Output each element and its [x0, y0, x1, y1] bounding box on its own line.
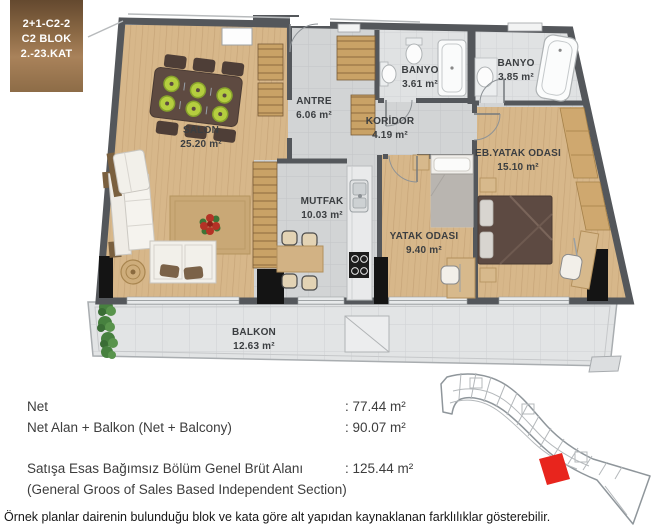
site-plan-outline: [441, 374, 650, 524]
summary-value: : 125.44 m²: [345, 461, 413, 476]
nightstand: [413, 155, 429, 170]
nightstand: [480, 268, 496, 282]
summary-row-gross-en: (General Groos of Sales Based Independen…: [0, 482, 460, 500]
kitchen-cabinet-divider: [253, 162, 277, 268]
desk-chair: [441, 266, 459, 284]
unit-type-badge: 2+1-C2-2 C2 BLOK 2.-23.KAT: [10, 0, 83, 92]
shower-icon: [438, 40, 466, 96]
site-plan: [441, 356, 650, 524]
desk-chair: [559, 253, 583, 280]
balcony-floor: [88, 302, 617, 366]
summary-label: (General Groos of Sales Based Independen…: [27, 482, 347, 497]
badge-line-block: C2 BLOK: [10, 32, 83, 47]
kitchen-counter: [347, 166, 372, 300]
summary-row-gross: Satışa Esas Bağımsız Bölüm Genel Brüt Al…: [0, 461, 460, 479]
floor-plan-page: 2+1-C2-2 C2 BLOK 2.-23.KAT SALON 25.20 m…: [0, 0, 660, 529]
armchair: [106, 147, 150, 197]
stove-icon: [349, 252, 369, 278]
disclaimer-text: Örnek planlar dairenin bulunduğu blok ve…: [4, 510, 658, 524]
sink-icon: [350, 180, 368, 212]
toilet-icon: [406, 38, 422, 64]
summary-label: Net: [27, 399, 48, 414]
summary-row-net: Net : 77.44 m²: [0, 399, 460, 417]
coffee-table: [121, 260, 145, 284]
summary-value: : 90.07 m²: [345, 420, 406, 435]
badge-line-type: 2+1-C2-2: [10, 17, 83, 32]
tv-unit: [99, 256, 113, 298]
washbasin-icon: [475, 58, 497, 96]
badge-line-floor: 2.-23.KAT: [10, 47, 83, 62]
summary-label: Net Alan + Balkon (Net + Balcony): [27, 420, 232, 435]
summary-label: Satışa Esas Bağımsız Bölüm Genel Brüt Al…: [27, 461, 303, 476]
sofa-chaise: [150, 241, 216, 283]
summary-value: : 77.44 m²: [345, 399, 406, 414]
summary-row-net-balcony: Net Alan + Balkon (Net + Balcony) : 90.0…: [0, 420, 460, 438]
floor-plan-graphic: [0, 0, 660, 529]
nightstand: [480, 178, 496, 192]
